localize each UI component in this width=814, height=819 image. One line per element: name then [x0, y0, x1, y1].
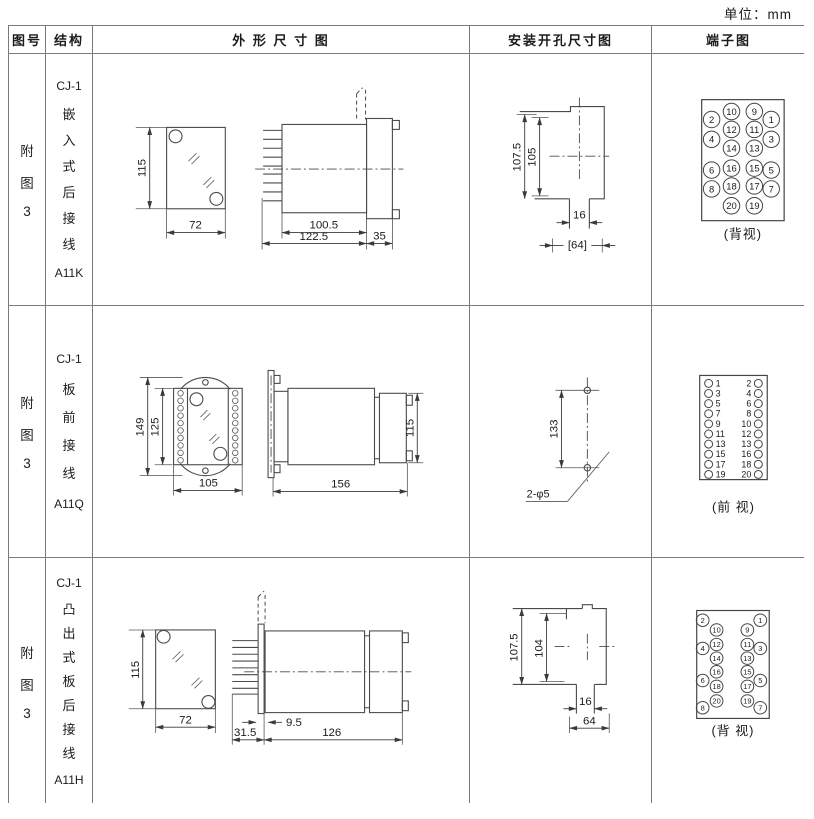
dim-label: 122.5	[300, 231, 329, 243]
terminal-number: 19	[743, 697, 751, 706]
terminal-pin	[754, 420, 762, 428]
terminal-pin	[705, 420, 713, 428]
side-view: 156 115	[268, 370, 423, 496]
terminal-cell: 2468101214161820911131517191357(背视)	[652, 54, 805, 305]
struct-char: 嵌	[62, 104, 75, 123]
struct-char: 接	[62, 208, 75, 227]
terminal-number: 7	[769, 183, 774, 194]
terminal-number: 2	[701, 616, 705, 625]
dim-label: 100.5	[309, 220, 338, 232]
struct-char: 线	[62, 463, 75, 482]
struct-char: 接	[62, 719, 75, 738]
terminal-pin	[754, 430, 762, 438]
fig-char: 图	[20, 674, 34, 694]
dim-label: 107.5	[512, 143, 524, 172]
terminal-pin	[705, 460, 713, 468]
dim-label: 16	[573, 210, 586, 222]
terminal-number: 11	[744, 640, 752, 649]
spec-table: 图号 结构 外 形 尺 寸 图 安装开孔尺寸图 端子图 附 图 3 CJ-1 嵌…	[8, 25, 804, 803]
struct-char: 式	[62, 156, 75, 175]
dim-label: 64	[583, 715, 596, 727]
terminal-number: 7	[716, 409, 721, 419]
hole-callout: 2-φ5	[527, 488, 550, 500]
struct-char: 式	[62, 647, 75, 666]
terminal-number: 5	[758, 676, 762, 685]
fig-char: 图	[20, 172, 34, 192]
model-code: A11K	[55, 266, 83, 280]
terminal-pin	[705, 470, 713, 478]
header-fig: 图号	[9, 26, 45, 53]
terminal-number: 13	[741, 439, 751, 449]
terminal-number: 14	[712, 654, 720, 663]
terminal-number: 15	[716, 449, 726, 459]
terminal-number: 16	[726, 162, 736, 173]
terminal-number: 17	[743, 682, 751, 691]
fig-char: 附	[20, 140, 34, 160]
terminal-number: 1	[758, 616, 762, 625]
terminal-pin	[754, 400, 762, 408]
terminal-number: 18	[726, 180, 736, 191]
dim-label: 149	[135, 418, 147, 437]
terminal-number: 13	[749, 143, 759, 154]
struct-char: 线	[62, 743, 75, 762]
terminal-pin	[705, 450, 713, 458]
dim-label: 72	[189, 220, 202, 232]
fig-char: 3	[23, 204, 31, 219]
figure-number: 附 图 3	[9, 54, 45, 305]
view-caption: (前 视)	[712, 499, 755, 514]
terminal-number: 8	[746, 409, 751, 419]
terminal-number: 14	[726, 143, 736, 154]
mount-cell: 133 2-φ5	[470, 306, 651, 557]
terminal-number: 20	[741, 469, 751, 479]
terminal-number: 8	[709, 183, 714, 194]
terminal-number: 19	[716, 469, 726, 479]
terminal-pin	[754, 460, 762, 468]
outline-cell: 115 72	[93, 558, 469, 804]
front-view: 115 72	[129, 630, 216, 733]
terminal-number: 7	[758, 703, 762, 712]
mount-cell: 107.5 104 16 64	[470, 558, 651, 804]
terminal-number: 2	[746, 378, 751, 388]
front-view: 115 72	[136, 127, 226, 238]
terminal-pin	[705, 400, 713, 408]
terminal-number: 4	[746, 388, 751, 398]
header-outline: 外 形 尺 寸 图	[93, 26, 469, 53]
terminal-number: 12	[726, 124, 736, 135]
fig-char: 3	[23, 456, 31, 471]
dim-label: 156	[331, 479, 350, 491]
mounting-drawing-a11q: 133 2-φ5	[470, 306, 651, 557]
terminal-number: 11	[749, 124, 759, 135]
terminal-number: 10	[726, 106, 736, 117]
header-struct: 结构	[46, 26, 92, 53]
terminal-pin	[754, 379, 762, 387]
dim-label: 125	[150, 418, 162, 437]
terminal-number: 4	[701, 644, 705, 653]
terminal-number: 8	[701, 703, 705, 712]
terminal-diagram-a11h: 2468101214161820911131517191357(背 视)	[652, 558, 805, 804]
terminal-number: 18	[712, 682, 720, 691]
terminal-pin	[705, 390, 713, 398]
dim-label: 16	[579, 696, 592, 708]
struct-char: 板	[62, 379, 75, 398]
dim-label: [64]	[568, 239, 587, 251]
terminal-pin	[754, 390, 762, 398]
manual-page: { "unit_label": "单位：mm", "header": { "co…	[0, 0, 814, 819]
unit-label: 单位：mm	[724, 3, 792, 23]
terminal-number: 6	[701, 676, 705, 685]
outline-drawing-a11k: 115 72	[93, 54, 469, 305]
mounting-drawing-a11h: 107.5 104 16 64	[470, 558, 651, 804]
terminal-number: 5	[716, 399, 721, 409]
side-view: 9.5 31.5 126	[232, 591, 411, 745]
model-code: A11H	[54, 773, 83, 787]
terminal-number: 15	[749, 162, 759, 173]
terminal-number: 17	[716, 459, 726, 469]
terminal-number: 9	[716, 419, 721, 429]
terminal-pin	[754, 410, 762, 418]
terminal-number: 13	[716, 439, 726, 449]
struct-char: 凸	[62, 599, 75, 618]
terminal-number: 12	[741, 429, 751, 439]
terminal-number: 9	[752, 106, 757, 117]
terminal-number: 3	[758, 644, 762, 653]
structure-label: CJ-1 凸 出 式 板 后 接 线 A11H	[46, 558, 92, 804]
outline-drawing-a11q: 149 125 105	[93, 306, 469, 557]
struct-char: 后	[62, 695, 75, 714]
struct-char: 出	[62, 623, 75, 642]
terminal-number: 19	[749, 200, 759, 211]
fig-char: 图	[20, 424, 34, 444]
terminal-number: 9	[745, 626, 749, 635]
terminal-number: 15	[743, 667, 751, 676]
dim-label: 104	[533, 639, 545, 658]
struct-char: 前	[62, 407, 75, 426]
terminal-number: 18	[741, 459, 751, 469]
struct-char: 入	[62, 130, 75, 149]
terminal-diagram-a11k: 2468101214161820911131517191357(背视)	[652, 54, 805, 305]
struct-char: 接	[62, 435, 75, 454]
terminal-number: 1	[769, 114, 774, 125]
dim-label: 9.5	[286, 717, 302, 729]
struct-char: 线	[62, 234, 75, 253]
terminal-number: 6	[746, 399, 751, 409]
terminal-number: 10	[741, 419, 751, 429]
figure-number: 附 图 3	[9, 306, 45, 557]
terminal-number: 4	[709, 134, 714, 145]
model-name: CJ-1	[56, 79, 81, 93]
dim-label: 115	[130, 661, 142, 679]
dim-label: 31.5	[234, 727, 256, 739]
terminal-number: 16	[712, 667, 720, 676]
header-mount: 安装开孔尺寸图	[470, 26, 651, 53]
mount-cell: 107.5 105 16 [64]	[470, 54, 651, 305]
terminal-number: 1	[716, 378, 721, 388]
terminal-cell: 1357911131517192468101213161820(前 视)	[652, 306, 805, 557]
header-terminal: 端子图	[652, 26, 805, 53]
terminal-strip-circles	[178, 391, 238, 464]
dim-label: 105	[199, 478, 218, 490]
front-view: 149 125 105	[135, 377, 242, 495]
dim-label: 72	[179, 714, 192, 726]
dim-label: 115	[404, 419, 416, 437]
model-code: A11Q	[54, 497, 84, 511]
structure-label: CJ-1 板 前 接 线 A11Q	[46, 306, 92, 557]
dim-label: 105	[527, 148, 539, 167]
terminal-number: 3	[716, 388, 721, 398]
terminal-cell: 2468101214161820911131517191357(背 视)	[652, 558, 805, 804]
terminal-number: 13	[743, 654, 751, 663]
struct-char: 后	[62, 182, 75, 201]
terminal-number: 17	[749, 180, 759, 191]
model-name: CJ-1	[56, 576, 81, 590]
terminal-number: 5	[769, 164, 774, 175]
mounting-drawing-a11k: 107.5 105 16 [64]	[470, 54, 651, 305]
terminal-number: 16	[741, 449, 751, 459]
struct-char: 板	[62, 671, 75, 690]
outline-cell: 149 125 105	[93, 306, 469, 557]
terminal-number: 10	[712, 626, 720, 635]
model-name: CJ-1	[56, 352, 81, 366]
terminal-pin	[705, 440, 713, 448]
terminal-pin	[705, 410, 713, 418]
dim-label: 115	[137, 159, 149, 177]
terminal-number: 11	[716, 429, 725, 439]
fig-char: 3	[23, 706, 31, 721]
terminal-number: 20	[712, 697, 720, 706]
fig-char: 附	[20, 642, 34, 662]
view-caption: (背视)	[724, 227, 762, 242]
terminal-pin	[705, 430, 713, 438]
structure-label: CJ-1 嵌 入 式 后 接 线 A11K	[46, 54, 92, 305]
dim-label: 126	[322, 727, 341, 739]
terminal-pin	[754, 470, 762, 478]
terminal-number: 2	[709, 114, 714, 125]
terminal-number: 20	[726, 200, 736, 211]
side-view: 100.5 122.5 35	[255, 88, 403, 250]
dim-label: 35	[373, 231, 386, 243]
terminal-number: 12	[712, 640, 720, 649]
terminal-pin	[754, 450, 762, 458]
outline-drawing-a11h: 115 72	[93, 558, 469, 804]
terminal-pin	[754, 440, 762, 448]
figure-number: 附 图 3	[9, 558, 45, 804]
dim-label: 133	[549, 420, 561, 439]
terminal-pin	[705, 379, 713, 387]
terminal-diagram-a11q: 1357911131517192468101213161820(前 视)	[652, 306, 805, 557]
view-caption: (背 视)	[711, 723, 754, 738]
terminal-number: 6	[709, 164, 714, 175]
terminal-number: 3	[769, 134, 774, 145]
dim-label: 107.5	[509, 633, 521, 661]
outline-cell: 115 72	[93, 54, 469, 305]
fig-char: 附	[20, 392, 34, 412]
